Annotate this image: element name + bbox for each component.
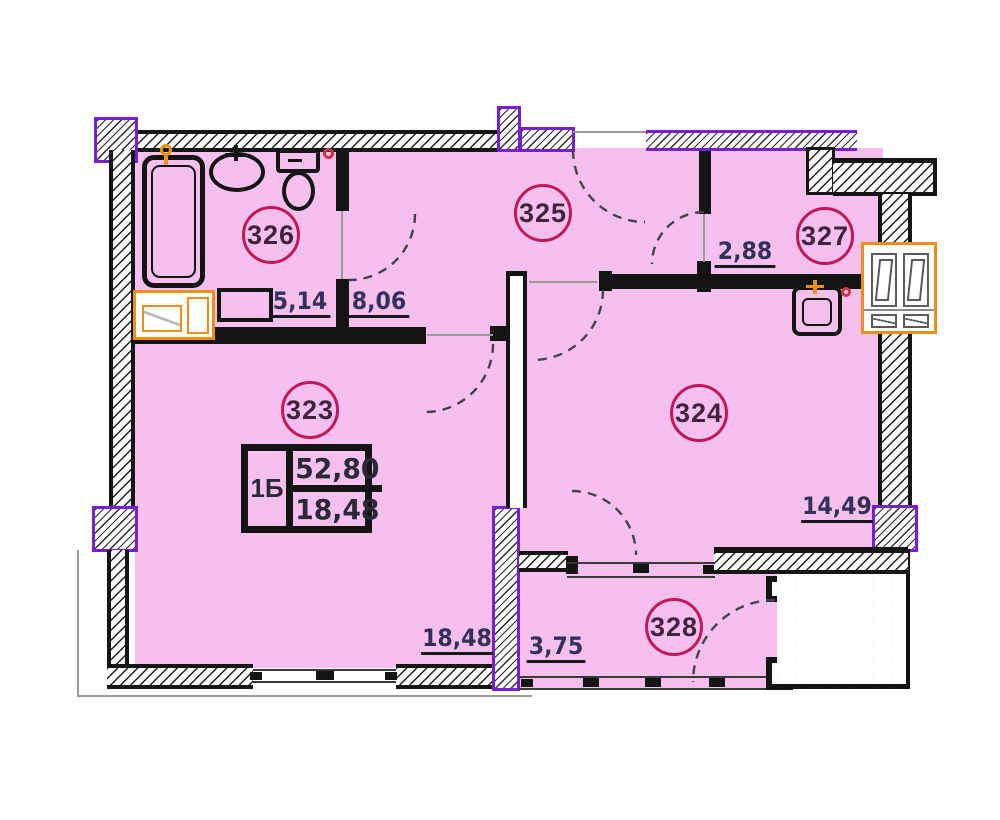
- room-label-327: 327: [796, 207, 854, 265]
- door-jamb-line: [529, 281, 597, 283]
- wall-step-horizontal: [833, 158, 937, 196]
- loggia-tile-floor: [777, 574, 893, 686]
- sink-kitchen-tap-bar: [806, 285, 824, 288]
- window-pane-glass: [875, 259, 893, 301]
- washing-machine-panel: [187, 297, 209, 334]
- balcony-door-window-line: [567, 576, 715, 578]
- dim-balcony: 3,75: [527, 634, 586, 663]
- apartment-info-box: 1Б 52,80 18,48: [241, 444, 372, 533]
- wall-left: [109, 150, 135, 510]
- wall-left-lower: [107, 550, 129, 670]
- window-pane-glass: [907, 259, 925, 301]
- valve-icon: [841, 287, 851, 297]
- column-bottom-right: [872, 505, 918, 552]
- window-tick: [250, 672, 262, 680]
- room-label-326: 326: [242, 206, 300, 264]
- door-jamb-line: [703, 214, 705, 262]
- valve-icon: [323, 148, 334, 159]
- total-area-value: 52,80: [295, 451, 379, 485]
- door-jamb-line: [341, 211, 343, 279]
- column-left: [92, 506, 138, 552]
- room-number: 328: [650, 612, 698, 643]
- window-tick: [633, 564, 649, 573]
- room-number: 327: [801, 221, 849, 252]
- wall-balcony-left: [519, 551, 568, 572]
- wall-loggia-top: [714, 547, 908, 574]
- window-tick: [709, 678, 725, 687]
- loggia-bottom-line: [777, 684, 910, 689]
- window-tick: [316, 671, 334, 680]
- entrance-threshold-line: [573, 131, 647, 133]
- wall-326-east-upper: [336, 151, 349, 211]
- sink-kitchen-basin: [802, 298, 832, 326]
- wall-bottom-left: [107, 664, 253, 689]
- wall-326-east-lower: [336, 279, 349, 329]
- dim-bathroom: 5,14: [270, 289, 331, 318]
- room-number: 326: [247, 220, 295, 251]
- washing-machine-door: [142, 305, 182, 332]
- wall-327-south-cap: [599, 271, 612, 291]
- window-tick: [583, 678, 599, 687]
- washing-machine: [133, 290, 215, 340]
- info-box-divider: [286, 451, 293, 526]
- dim-living: 18,48: [421, 626, 493, 655]
- wall-step-vertical: [806, 147, 835, 195]
- ground-line-horizontal: [77, 695, 532, 697]
- window-pane: [871, 253, 897, 307]
- door-jamb-line: [427, 334, 493, 336]
- info-box-divider: [293, 485, 382, 492]
- entrance-pier: [519, 127, 575, 152]
- living-window-line: [253, 681, 396, 683]
- window-sill-line: [864, 309, 934, 311]
- dim-kitchen: 2,88: [715, 239, 776, 268]
- wall-bottom-mid: [396, 664, 494, 689]
- room-number: 324: [675, 398, 723, 429]
- entrance-pier-riser: [497, 106, 521, 152]
- room-label-328: 328: [645, 598, 703, 656]
- living-area-value: 18,48: [295, 492, 379, 526]
- toilet-bowl: [282, 171, 315, 211]
- wall-325-327-upper: [699, 151, 711, 214]
- wall-central: [506, 271, 527, 508]
- bathtub: [142, 155, 205, 288]
- window-pane: [903, 253, 929, 307]
- window-tick: [645, 678, 661, 687]
- bathtub-inner: [151, 165, 196, 278]
- ground-line-vertical: [77, 550, 79, 697]
- balcony-glazing-line: [519, 688, 779, 690]
- kitchen-window: [861, 242, 937, 334]
- bathtub-tap-stem: [164, 156, 168, 165]
- window-vent: [871, 314, 897, 328]
- cabinet-326: [217, 288, 273, 322]
- window-tick: [385, 672, 397, 680]
- toilet-tank-line: [288, 159, 302, 162]
- dim-bedroom: 14,49: [801, 494, 873, 523]
- window-tick: [566, 565, 578, 574]
- window-vent: [903, 314, 929, 328]
- bathtub-tap-icon: [160, 144, 172, 156]
- unit-type: 1Б: [248, 451, 286, 526]
- window-tick: [521, 679, 533, 687]
- sink-kitchen: [792, 286, 842, 336]
- room-number: 325: [519, 198, 567, 229]
- floor-plan: 326 325 327 323 324 328 5,14 8,06 2,88 1…: [0, 0, 1000, 820]
- sink-326-tap-bar: [225, 153, 247, 157]
- pier-bottom-center: [492, 506, 520, 691]
- room-number: 323: [286, 395, 334, 426]
- room-label-323: 323: [281, 381, 339, 439]
- room-label-324: 324: [670, 384, 728, 442]
- room-label-325: 325: [514, 184, 572, 242]
- dim-hallway: 8,06: [349, 289, 410, 318]
